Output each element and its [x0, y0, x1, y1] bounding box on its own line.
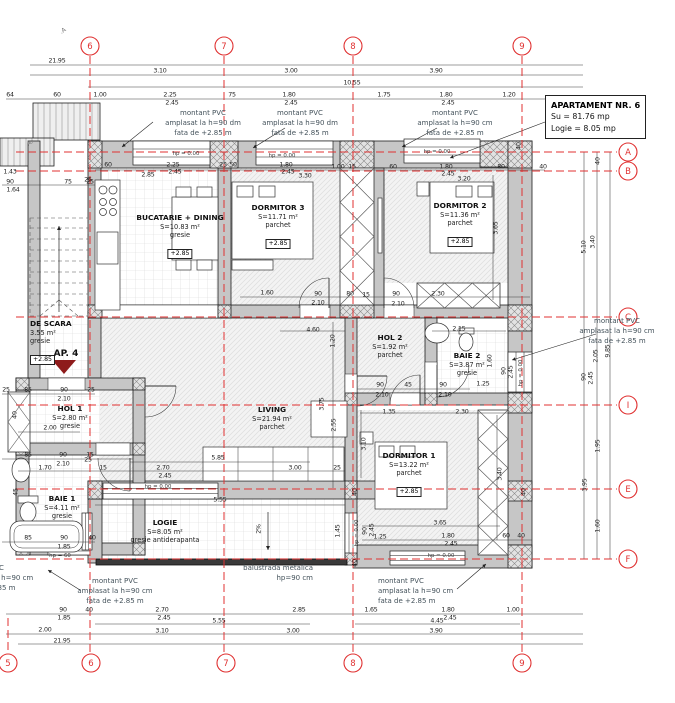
dimension-label: 45: [404, 382, 412, 389]
annotation-note: montant PVCamplasat la h=90 dmfata de +2…: [262, 108, 338, 139]
dimension-label: 40: [88, 535, 96, 542]
wall-opening: [300, 305, 330, 318]
dimension-label: 1.60: [595, 519, 602, 532]
annotation-line: fata de +2.85 m: [0, 583, 33, 593]
dimension-label: 3.30: [298, 173, 311, 180]
annotation-line: hp=90 cm: [113, 573, 313, 583]
wall-opening: [425, 362, 437, 396]
room-name: BAIE 2: [449, 351, 485, 361]
parapet-height-label: hp = 0.00: [354, 520, 360, 547]
grid-bubble-label-7: 7: [221, 42, 226, 52]
dimension-label: 15: [99, 465, 107, 472]
floor-plan-canvas: 678956789ABCIEF 21.953.103.003.9010.5564…: [0, 0, 675, 703]
dimension-label: 1.80: [441, 533, 454, 540]
apartment-title: APARTAMENT NR. 6: [551, 99, 640, 111]
room-finish: gresie: [44, 512, 80, 521]
dimension-label: 3.65: [493, 221, 500, 234]
room-finish: parchet: [434, 219, 487, 228]
dimension-label: 90: [6, 179, 14, 186]
dimension-label: 2.45: [441, 100, 454, 107]
dimension-label: 64: [6, 92, 14, 99]
stair-break-line: [59, 300, 78, 316]
dimension-label: 1.80: [439, 92, 452, 99]
room-label-dormitor3: DORMITOR 3S=11.71 m²parchet+2.85: [252, 203, 305, 249]
dimension-label: 3.95: [582, 478, 589, 491]
annotation-line: amplasat la h=90 cm: [77, 586, 152, 596]
parapet-height-label: hp = 0.00: [428, 553, 455, 559]
fixture-circle: [109, 186, 117, 194]
x-cabinet: [8, 392, 30, 452]
dimension-label: 2.05: [593, 349, 600, 362]
grid-bubble-label-9: 9: [519, 659, 524, 669]
dimension-label: 1.65: [364, 607, 377, 614]
parapet-height-label: hp = 0.00: [145, 484, 172, 490]
staircase-label-line: gresie: [30, 337, 72, 346]
room-label-baie2: BAIE 2S=3.87 m²gresie: [449, 351, 485, 378]
room-name: DORMITOR 1: [383, 451, 436, 461]
dimension-label: 40: [85, 607, 93, 614]
grid-bubble-label-8: 8: [350, 659, 355, 669]
dimension-label: 1.45: [335, 524, 342, 537]
furniture: [232, 260, 273, 270]
dimension-label: 2.45: [441, 171, 454, 178]
dimension-label: 1.80: [279, 162, 292, 169]
dimension-label: 3.10: [153, 68, 166, 75]
room-finish: parchet: [252, 423, 292, 432]
room-name: LIVING: [252, 405, 292, 415]
annotation-line: montant PVC: [0, 563, 33, 573]
dimension-label: 2%: [256, 524, 263, 534]
fixture-circle: [99, 186, 107, 194]
room-level-badge: +2.85: [168, 249, 193, 259]
fixture-circle: [100, 199, 107, 206]
leader-line: [48, 570, 80, 590]
dimension-label: 3.10: [361, 437, 368, 450]
room-area: S=8.05 m²: [131, 528, 200, 537]
dimension-label: 21.95: [48, 58, 65, 65]
dimension-label: 60: [53, 92, 61, 99]
dimension-label: 2.45: [443, 615, 456, 622]
dimension-label: 3.00: [286, 628, 299, 635]
dimension-label: 1.64: [6, 187, 19, 194]
dimension-label: 2.45: [281, 169, 294, 176]
dimension-label: 3.00: [288, 465, 301, 472]
dimension-label: 2.10: [375, 392, 388, 399]
dimension-label: 40: [539, 164, 547, 171]
furniture: [259, 186, 275, 197]
furniture: [478, 186, 492, 197]
furniture: [456, 186, 472, 197]
dimension-label: 2.45: [284, 100, 297, 107]
room-area: S=4.11 m²: [44, 504, 80, 513]
dimension-label: 2.45: [157, 615, 170, 622]
dimension-label: 1.20: [330, 334, 337, 347]
annotation-line: amplasat la h=90 dm: [262, 118, 338, 128]
furniture: [176, 260, 191, 270]
annotation-line: montant PVC: [579, 316, 654, 326]
dimension-label: 3.00: [284, 68, 297, 75]
dimension-label: 2.10: [391, 301, 404, 308]
apartment-usable-area: Su = 81.76 mp: [551, 111, 640, 123]
parapet-height-label: hp = 0.00: [424, 149, 451, 155]
sanitary-fixture: [459, 333, 473, 351]
dimension-label: 25: [2, 387, 10, 394]
furniture: [97, 232, 118, 264]
dimension-label: 40: [595, 157, 602, 165]
parapet-height-label: hp = 0.00: [269, 153, 296, 159]
furniture: [378, 198, 382, 253]
annotation-line: montant PVC: [165, 108, 241, 118]
room-area: S=2.80 m²: [52, 414, 88, 423]
room-name: BUCATARIE + DINING: [136, 213, 223, 223]
room-area: S=13.22 m²: [383, 461, 436, 470]
dimension-label: 40: [12, 411, 19, 419]
annotation-line: fata de +2.85 m: [378, 596, 453, 606]
grid-bubble-label-6: 6: [87, 42, 92, 52]
dimension-label: 90: [376, 382, 384, 389]
dimension-label: 2.10: [438, 392, 451, 399]
dimension-label: 2.25: [163, 92, 176, 99]
dimension-label: 2.70: [156, 465, 169, 472]
dimension-label: 25: [87, 387, 95, 394]
room-area: S=1.92 m²: [372, 343, 408, 352]
dimension-label: 1.85: [57, 615, 70, 622]
parapet-height-label: hp = 0.00: [518, 360, 524, 387]
annotation-line: amplasat la h=90 cm: [417, 118, 492, 128]
dimension-label: 10.55: [343, 80, 360, 87]
parapet-height-label: hp = 60: [49, 553, 71, 559]
dimension-label: 1.60: [487, 354, 494, 367]
x-cabinet: [340, 168, 374, 305]
dimension-label: 2.55: [331, 418, 338, 431]
dimension-label: 2.15: [452, 326, 465, 333]
dimension-label: 90: [362, 527, 369, 535]
concrete-pier: [425, 393, 437, 405]
dimension-label: 90: [60, 535, 68, 542]
dimension-label: 50: [229, 162, 237, 169]
furniture: [176, 187, 191, 197]
dimension-label: 2.45: [444, 541, 457, 548]
dimension-label: 3.40: [590, 235, 597, 248]
dimension-label: 3.40: [497, 467, 504, 480]
room-label-living: LIVINGS=21.94 m²parchet: [252, 405, 292, 432]
dimension-label: 2.10: [56, 461, 69, 468]
dimension-label: 75: [64, 179, 72, 186]
annotation-line: amplasat la h=90 cm: [378, 586, 453, 596]
annotation-line: montant PVC: [262, 108, 338, 118]
apartment-4-entrance-label: AP. 4: [54, 349, 79, 359]
annotation-line: balustrada metalica: [113, 563, 313, 573]
dimension-label: 2.45: [158, 473, 171, 480]
room-name: BAIE 1: [44, 494, 80, 504]
dimension-label: 2.30: [455, 409, 468, 416]
dimension-label: 80: [497, 164, 505, 171]
apartment-info-box: APARTAMENT NR. 6 Su = 81.76 mp Logie = 8…: [545, 95, 646, 139]
wall-opening: [96, 443, 130, 455]
room-label-bucatarie: BUCATARIE + DININGS=10.83 m²gresie+2.85: [136, 213, 223, 259]
grid-bubble-label-6: 6: [88, 659, 93, 669]
concrete-pier: [508, 305, 532, 331]
furniture: [197, 187, 212, 197]
dimension-label: 1.00: [506, 607, 519, 614]
dimension-label: 1.80: [441, 607, 454, 614]
grid-bubble-label-E: E: [625, 485, 630, 495]
dimension-label: 3.20: [457, 176, 470, 183]
dimension-label: 90: [59, 452, 67, 459]
dimension-label: 1.35: [382, 409, 395, 416]
grid-bubble-label-I: I: [627, 401, 630, 411]
annotation-line: amplasat la h=90 dm: [165, 118, 241, 128]
dimension-label: 85: [24, 387, 32, 394]
room-finish: parchet: [383, 469, 436, 478]
room-name: LOGIE: [131, 518, 200, 528]
dimension-label: 3.90: [429, 68, 442, 75]
dimension-label: 1.25: [476, 381, 489, 388]
dimension-label: 90: [59, 607, 67, 614]
furniture: [237, 186, 253, 197]
room-name: HOL 2: [372, 333, 408, 343]
sanitary-fixture: [20, 502, 36, 522]
dimension-label: 40: [352, 559, 359, 567]
dimension-label: 2.45: [588, 371, 595, 384]
dimension-label: 2.10: [311, 300, 324, 307]
dimension-label: 2.10: [57, 396, 70, 403]
dimension-label: 1.95: [595, 439, 602, 452]
dimension-label: 40: [516, 142, 523, 150]
dimension-label: 80: [346, 291, 354, 298]
dimension-label: 4.60: [306, 327, 319, 334]
concrete-pier: [133, 443, 145, 455]
staircase-label-line: DE SCARA: [30, 319, 72, 329]
dimension-label: 25: [84, 457, 92, 464]
dimension-label: 1.70: [38, 465, 51, 472]
room-name: HOL 1: [52, 404, 88, 414]
annotation-line: fata de +2.85 m: [165, 128, 241, 138]
room-label-baie1: BAIE 1S=4.11 m²gresie: [44, 494, 80, 521]
room-area: S=11.71 m²: [252, 213, 305, 222]
annotation-note: balustrada metalicahp=90 cm: [113, 563, 313, 583]
dimension-label: 3.90: [429, 628, 442, 635]
dimension-label: 15: [362, 292, 370, 299]
furniture: [311, 401, 347, 437]
dimension-label: 45: [13, 488, 20, 496]
dimension-label: 90: [501, 367, 508, 375]
dimension-label: 1.75: [377, 92, 390, 99]
dimension-label: 1.20: [502, 92, 515, 99]
annotation-line: fata de +2.85 m: [417, 128, 492, 138]
room-label-dormitor1: DORMITOR 1S=13.22 m²parchet+2.85: [383, 451, 436, 497]
annotation-note: montant PVCamplasat la h=90 cmfata de +2…: [417, 108, 492, 139]
furniture: [197, 260, 212, 270]
room-name: DORMITOR 3: [252, 203, 305, 213]
room-area: S=21.94 m²: [252, 415, 292, 424]
annotation-note: montant PVCamplasat la h=90 cmfata de +2…: [0, 563, 33, 594]
dimension-label: 40: [352, 488, 359, 496]
dimension-label: 1.80: [439, 164, 452, 171]
concrete-pier: [133, 378, 145, 390]
concrete-pier: [508, 545, 532, 568]
dimension-label: 2.85: [292, 607, 305, 614]
fixture-circle: [100, 209, 107, 216]
sanitary-fixture: [425, 323, 449, 343]
dimension-label: 2.00: [38, 627, 51, 634]
dimension-label: 40: [521, 488, 528, 496]
room-area: S=10.83 m²: [136, 223, 223, 232]
stair-break-line: [40, 300, 59, 316]
room-area: S=3.87 m²: [449, 361, 485, 370]
grid-bubble-label-5: 5: [5, 659, 10, 669]
dimension-label: 85: [24, 535, 32, 542]
dimension-label: 60: [389, 164, 397, 171]
annotation-line: montant PVC: [378, 576, 453, 586]
dimension-label: 90: [392, 291, 400, 298]
staircase-label-line: +2.85: [30, 355, 55, 365]
dimension-label: 40: [517, 533, 525, 540]
sanitary-fixture: [12, 458, 30, 482]
dimension-label: 1.60: [260, 290, 273, 297]
grid-bubble-label-B: B: [625, 167, 631, 177]
dimension-label: 2.45: [168, 169, 181, 176]
dimension-label: 2.45: [369, 523, 376, 536]
dimension-label: 1.00: [331, 164, 344, 171]
room-level-badge: +2.85: [448, 237, 473, 247]
wall-opening: [390, 393, 420, 405]
dimension-label: 60: [502, 533, 510, 540]
annotation-line: fata de +2.85 m: [262, 128, 338, 138]
dimension-label: 2.70: [155, 607, 168, 614]
dimension-label: 5.85: [211, 455, 224, 462]
grid-bubble-label-8: 8: [350, 42, 355, 52]
dimension-label: 85: [24, 452, 32, 459]
fixture-circle: [110, 209, 117, 216]
dimension-label: 1.80: [282, 92, 295, 99]
room-level-badge: +2.85: [397, 487, 422, 497]
concrete-pier: [340, 305, 374, 318]
dimension-label: 5.55: [212, 618, 225, 625]
room-label-hol1: HOL 1S=2.80 m²gresie: [52, 404, 88, 431]
bathtub: [10, 521, 83, 552]
room-finish: gresie: [52, 422, 88, 431]
annotation-note: montant PVCamplasat la h=90 dmfata de +2…: [165, 108, 241, 139]
annotation-line: amplasat la h=90 cm: [0, 573, 33, 583]
dimension-label: 2.45: [508, 365, 515, 378]
room-label-dormitor2: DORMITOR 2S=11.36 m²parchet+2.85: [434, 201, 487, 247]
grid-bubble-label-A: A: [625, 148, 631, 158]
dimension-label: 1.85: [57, 544, 70, 551]
dimension-label: 5.10: [581, 240, 588, 253]
dimension-label: 2.25: [166, 162, 179, 169]
dimension-label: 2.85: [141, 172, 154, 179]
grid-bubble-label-F: F: [626, 555, 631, 565]
dimension-label: 25: [333, 465, 341, 472]
annotation-line: fata de +2.85 m: [77, 596, 152, 606]
annotation-line: fata de +2.85 m: [579, 336, 654, 346]
room-name: DORMITOR 2: [434, 201, 487, 211]
annotation-note: montant PVCamplasat la h=90 cmfata de +2…: [378, 576, 453, 607]
room-label-hol2: HOL 2S=1.92 m²parchet: [372, 333, 408, 360]
room-label-logie: LOGIES=8.05 m²gresie antiderapanta: [131, 518, 200, 545]
room-finish: gresie antiderapanta: [131, 536, 200, 545]
fixture-circle: [110, 199, 117, 206]
dimension-label: 4.45: [430, 618, 443, 625]
dimension-label: 2.30: [431, 291, 444, 298]
grid-bubble-label-7: 7: [223, 659, 228, 669]
parapet-height-label: hp = 0.00: [173, 151, 200, 157]
annotation-line: amplasat la h=90 cm: [579, 326, 654, 336]
dimension-label: 15: [348, 164, 356, 171]
room-area: S=11.36 m²: [434, 211, 487, 220]
staircase-label-line: 3.55 m²: [30, 329, 72, 338]
dimension-label: 90: [581, 373, 588, 381]
room-level-badge: +2.85: [266, 239, 291, 249]
dimension-label: 1.43: [3, 169, 16, 176]
furniture: [417, 182, 429, 196]
room-finish: parchet: [252, 221, 305, 230]
dimension-label: 90: [314, 291, 322, 298]
apartment-loggia-area: Logie = 8.05 mp: [551, 123, 640, 135]
concrete-pier: [508, 393, 532, 413]
dimension-label: 3.10: [155, 628, 168, 635]
dimension-label: 1.00: [93, 92, 106, 99]
room-finish: gresie: [449, 369, 485, 378]
annotation-line: montant PVC: [417, 108, 492, 118]
dimension-label: 75: [228, 92, 236, 99]
dimension-label: 21.95: [53, 638, 70, 645]
dimension-label: 3.65: [433, 520, 446, 527]
dimension-label: 2.45: [165, 100, 178, 107]
room-finish: parchet: [372, 351, 408, 360]
room-finish: gresie: [136, 231, 223, 240]
dimension-label: 3.75: [319, 397, 326, 410]
dimension-label: 90: [439, 382, 447, 389]
dimension-label: 25: [219, 162, 227, 169]
dimension-label: 90: [60, 387, 68, 394]
dimension-label: 60: [104, 162, 112, 169]
dimension-label: 25: [86, 179, 94, 186]
concrete-pier: [340, 141, 374, 168]
dimension-label: 5.55: [213, 497, 226, 504]
grid-bubble-label-9: 9: [519, 42, 524, 52]
annotation-note: montant PVCamplasat la h=90 cmfata de +2…: [579, 316, 654, 347]
